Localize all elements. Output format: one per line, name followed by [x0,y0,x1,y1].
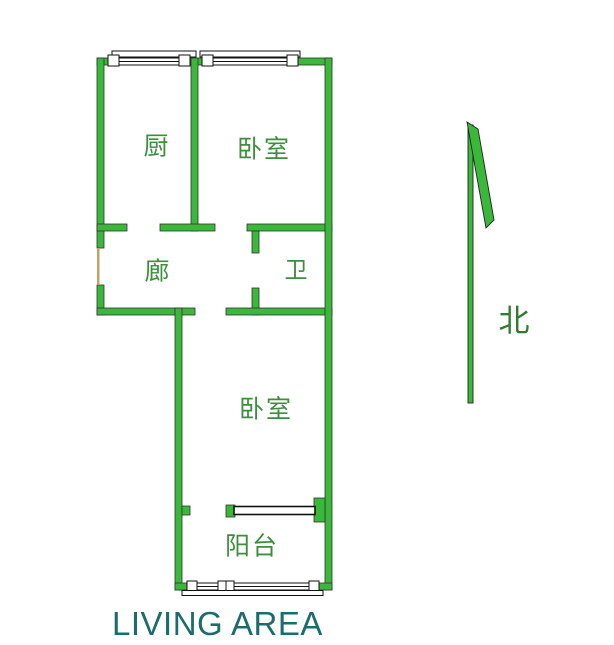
wall [175,308,182,590]
wall [191,58,198,231]
room-label-corridor: 廊 [144,259,171,284]
wall [325,58,332,590]
wall [247,224,332,231]
balcony-divider-window-icon [234,507,315,515]
wall [160,224,215,231]
wall [252,231,259,253]
wall [97,224,127,231]
wall [182,506,190,515]
entry-door-opening [97,248,100,285]
room-label-balcony: 阳台 [225,534,279,559]
room-label-kitchen: 厨 [143,134,170,159]
wall [97,58,104,248]
wall [226,308,332,315]
room-label-bathroom: 卫 [285,260,310,283]
balcony-window-icon [182,581,323,596]
living-area-caption: LIVING AREA [112,607,323,640]
floor-plan-page: 厨 卧室 廊 卫 卧室 阳台 北 LIVING AREA [0,0,614,645]
north-arrow-icon [467,122,494,403]
room-label-bedroom-south: 卧室 [239,397,293,422]
room-label-bedroom-north: 卧室 [237,137,291,162]
kitchen-window-icon [108,51,196,66]
compass-north-label: 北 [499,307,530,338]
bedroom-north-window-icon [200,51,300,66]
